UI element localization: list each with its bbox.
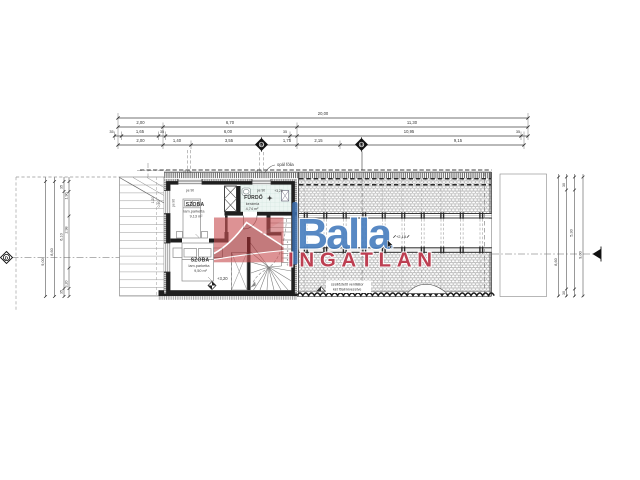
svg-text:9,15: 9,15 (454, 138, 463, 143)
svg-text:10: 10 (260, 143, 264, 147)
svg-text:6,70: 6,70 (226, 120, 235, 125)
svg-text:2,15: 2,15 (314, 138, 323, 143)
svg-text:3,55: 3,55 (225, 138, 234, 143)
svg-text:35: 35 (160, 130, 164, 134)
svg-text:FÜRDŐ: FÜRDŐ (244, 194, 263, 201)
svg-text:9,13 m²: 9,13 m² (190, 215, 204, 219)
svg-text:6,00: 6,00 (224, 129, 233, 134)
svg-text:6,10: 6,10 (60, 233, 64, 240)
svg-text:30: 30 (562, 183, 566, 187)
svg-text:két főali kivezetve: két főali kivezetve (333, 288, 361, 292)
svg-text:SZOBA: SZOBA (186, 202, 205, 208)
svg-text:10,95: 10,95 (404, 129, 415, 134)
svg-text:20,00: 20,00 (318, 111, 329, 116)
svg-text:35: 35 (60, 185, 64, 189)
svg-text:9,00: 9,00 (579, 251, 583, 258)
svg-text:+3,20: +3,20 (217, 276, 228, 281)
svg-text:13: 13 (360, 143, 364, 147)
svg-text:9,50 m²: 9,50 m² (194, 269, 208, 273)
svg-text:1,40: 1,40 (173, 138, 182, 143)
svg-text:9,00: 9,00 (41, 258, 45, 265)
svg-text:11,30: 11,30 (407, 120, 418, 125)
svg-text:opál fólia: opál fólia (277, 162, 294, 167)
svg-text:35: 35 (283, 130, 287, 134)
svg-text:pe 90: pe 90 (172, 199, 176, 207)
svg-text:1,20: 1,20 (151, 197, 155, 204)
svg-text:pe 90: pe 90 (186, 188, 194, 192)
svg-text:SZOBA: SZOBA (191, 258, 210, 264)
svg-text:5,30: 5,30 (570, 229, 574, 236)
svg-text:+3,20: +3,20 (274, 189, 283, 193)
svg-text:35: 35 (60, 290, 64, 294)
svg-text:D: D (5, 255, 8, 260)
svg-text:lam.parketta: lam.parketta (189, 264, 211, 268)
svg-text:lam.parketta: lam.parketta (184, 210, 206, 214)
svg-text:1,65: 1,65 (136, 129, 145, 134)
svg-text:pe 90: pe 90 (257, 188, 265, 192)
svg-text:INGATLAN: INGATLAN (288, 249, 432, 272)
svg-text:2,00: 2,00 (136, 138, 145, 143)
svg-text:30: 30 (562, 291, 566, 295)
svg-text:2,00: 2,00 (136, 120, 145, 125)
svg-text:35: 35 (109, 130, 113, 134)
svg-text:1,75: 1,75 (283, 138, 292, 143)
svg-text:4,74 m²: 4,74 m² (246, 207, 260, 211)
svg-text:szellőztető ventilátor: szellőztető ventilátor (331, 283, 364, 287)
svg-text:kerámia: kerámia (246, 202, 260, 206)
svg-text:35: 35 (516, 130, 520, 134)
svg-text:3,20: 3,20 (65, 281, 69, 288)
svg-text:0,90: 0,90 (157, 201, 161, 208)
svg-text:8,60: 8,60 (554, 258, 558, 265)
svg-text:8,60: 8,60 (50, 248, 54, 255)
svg-text:+2,15: +2,15 (396, 234, 407, 239)
svg-text:2,98: 2,98 (65, 227, 69, 234)
svg-text:1,90: 1,90 (65, 193, 69, 200)
